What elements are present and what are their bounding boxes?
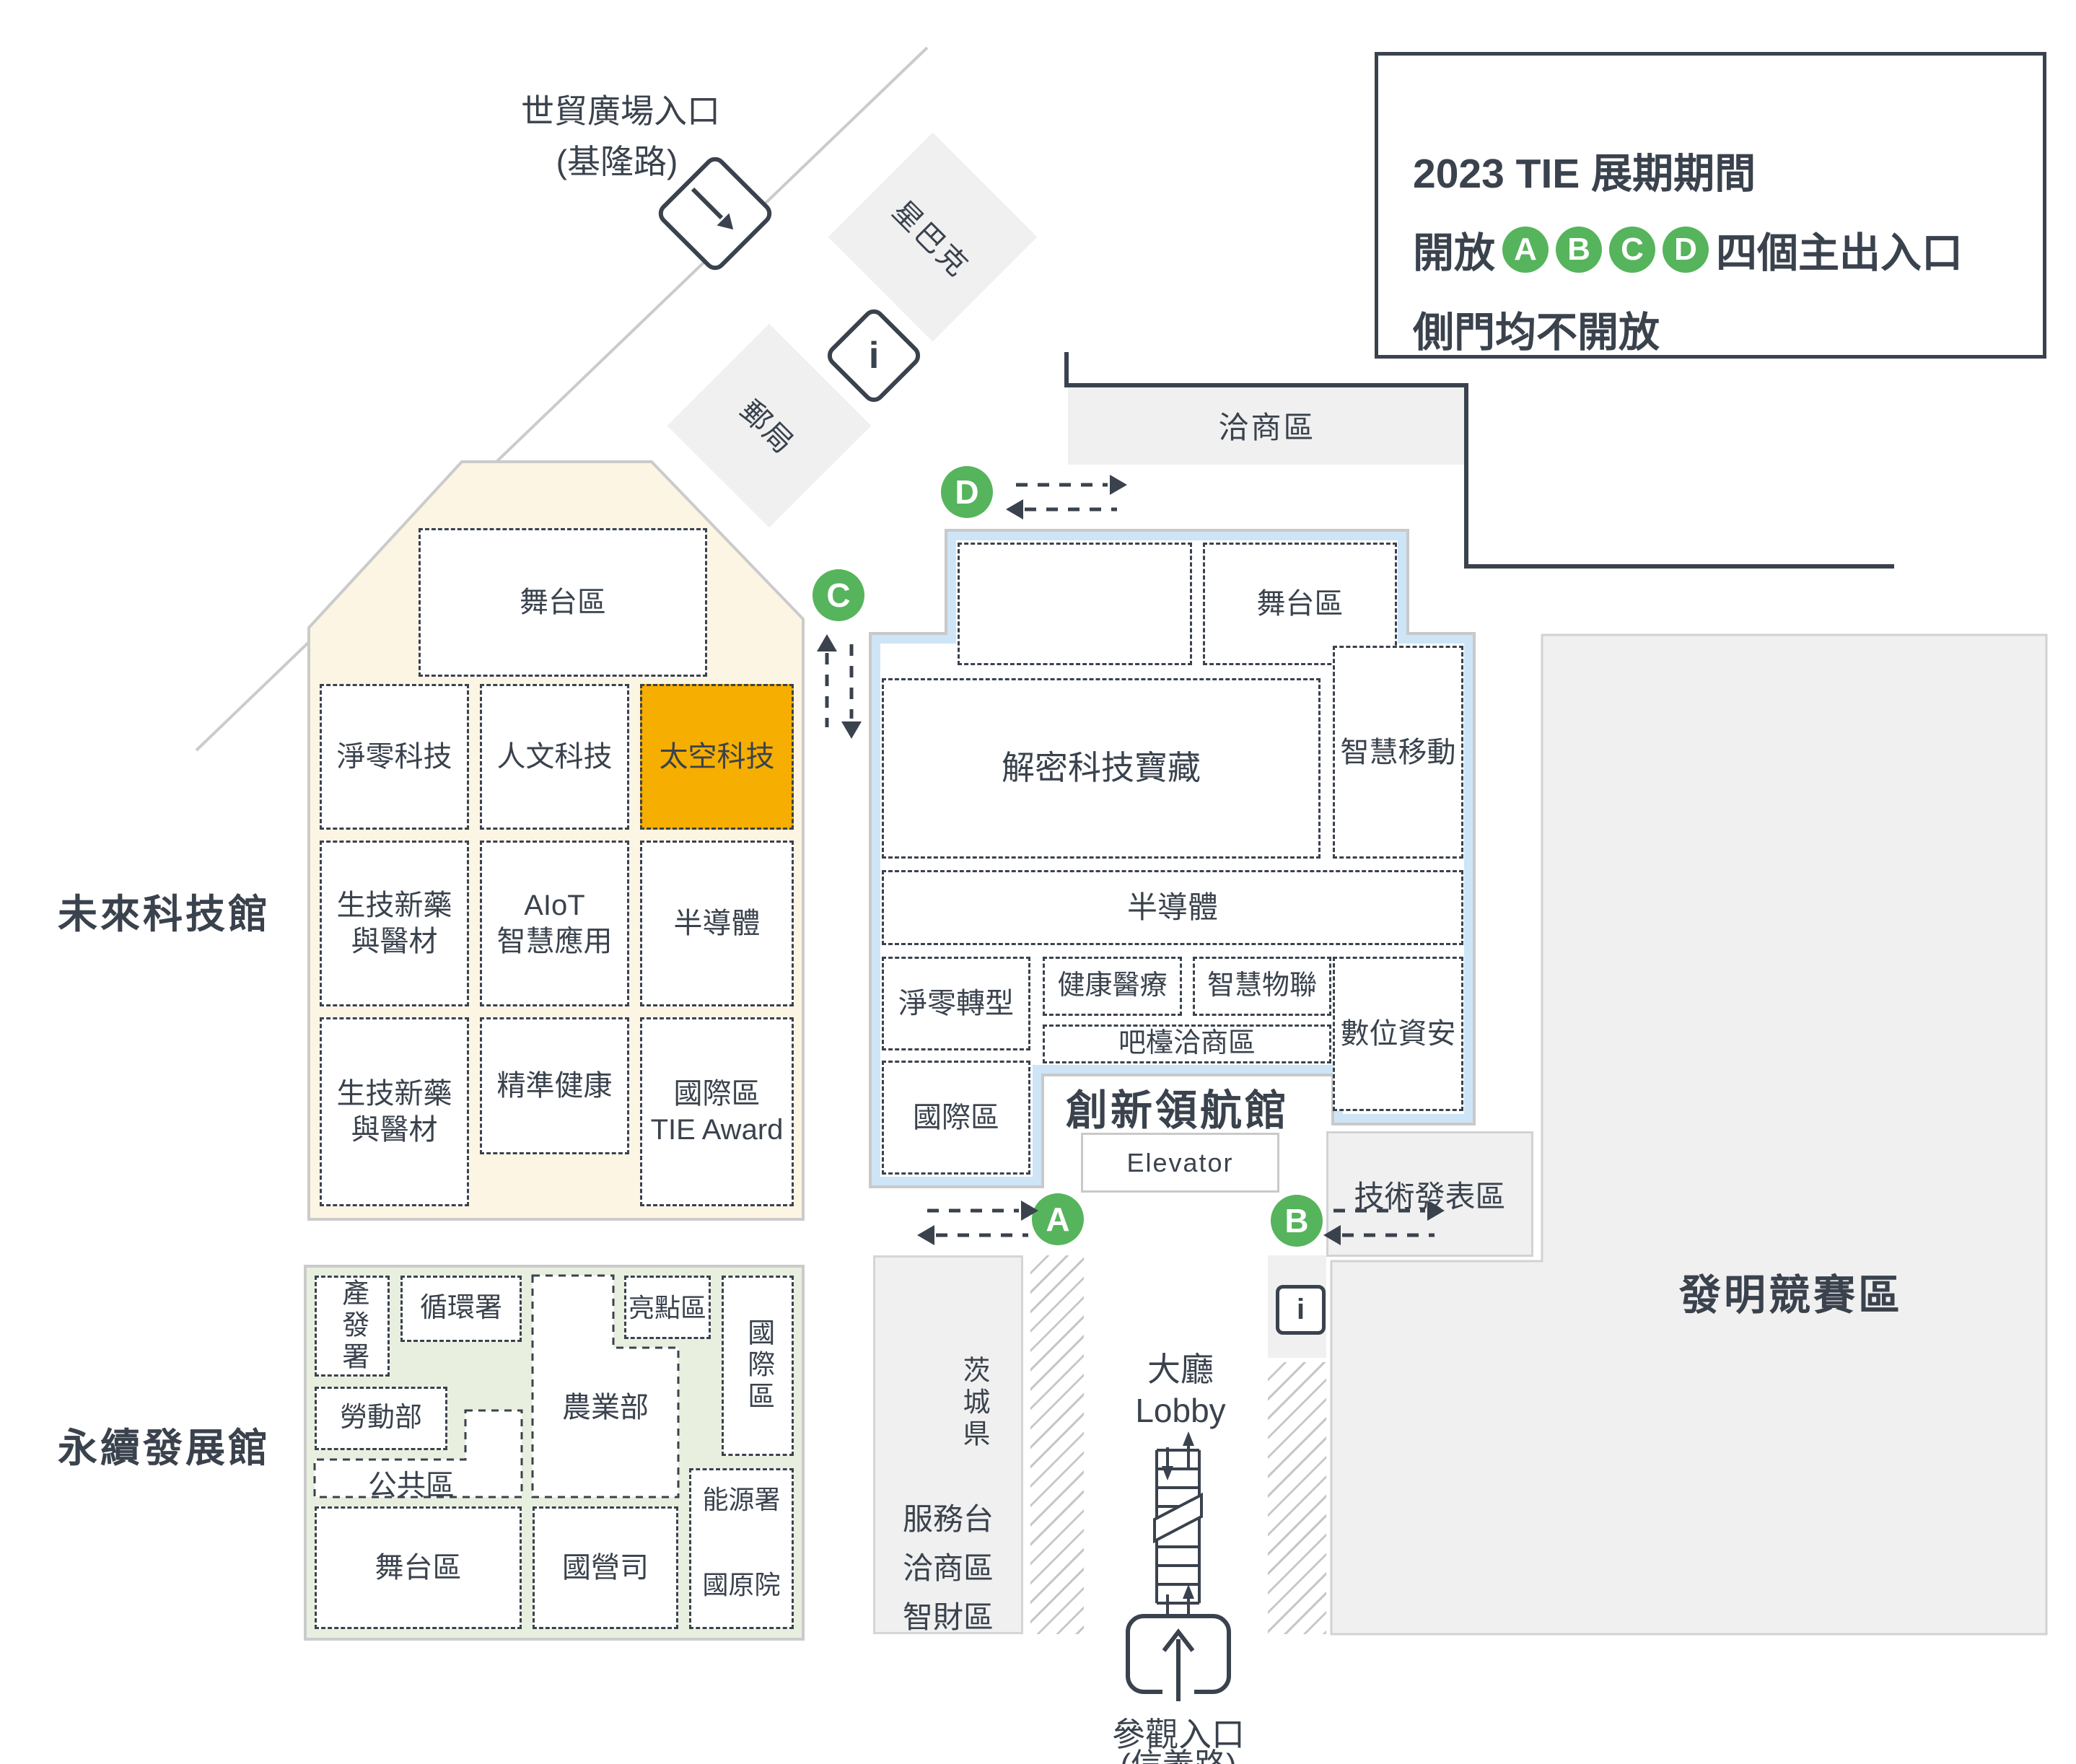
sustainable-hall-title: 永續發展館: [40, 1416, 289, 1473]
room-su-stage: 舞台區: [315, 1506, 522, 1629]
room-in-bar-area: 吧檯洽商區: [1043, 1024, 1331, 1063]
room-su-atomic-label: 國原院: [689, 1564, 794, 1602]
room-ft-intl-tie-award: 國際區 TIE Award: [640, 1017, 794, 1206]
legend-entrance-d: D: [1663, 227, 1709, 273]
legend-entrance-a: A: [1502, 227, 1549, 273]
info-icon: i: [823, 304, 924, 406]
negotiation-area-label: 洽商區: [1218, 403, 1315, 447]
lobby-label-en: Lobby: [1108, 1391, 1253, 1430]
entrance-b-badge: B: [1271, 1195, 1323, 1247]
floor-map: 2023 TIE 展期期間 開放 A B C D 四個主出入口 側門均不開放 世…: [0, 0, 2076, 1764]
room-su-highlight: 亮點區: [624, 1276, 711, 1339]
entrance-c-arrows: [817, 634, 862, 739]
room-su-agriculture-label: 農業部: [533, 1384, 678, 1426]
room-in-empty: [958, 543, 1192, 665]
room-su-labor: 勞動部: [315, 1387, 447, 1450]
entrance-d-badge: D: [941, 466, 993, 518]
room-ft-stage: 舞台區: [419, 528, 707, 677]
room-su-state-owned: 國營司: [533, 1506, 678, 1629]
legend-open-suffix: 四個主出入口: [1716, 220, 1963, 279]
visitor-entrance-road: (信義路): [1034, 1750, 1323, 1764]
room-ft-space-tech-highlighted: 太空科技: [640, 684, 794, 830]
starbucks-label: 星巴克: [885, 189, 980, 284]
entrance-d-arrows: [1006, 475, 1127, 519]
invention-area-label: 發明競賽區: [1647, 1261, 1935, 1322]
room-ft-humanities-tech: 人文科技: [480, 684, 629, 830]
innovation-hall-title: 創新領航館: [1044, 1076, 1311, 1137]
corridor-hatch-b: [1268, 1362, 1326, 1634]
post-office-label: 郵局: [732, 389, 806, 462]
room-ft-semiconductor: 半導體: [640, 841, 794, 1006]
elevator-box: Elevator: [1081, 1133, 1279, 1193]
legend-side-doors: 側門均不開放: [1413, 299, 1660, 359]
visitor-entrance-icon: [1128, 1616, 1229, 1701]
legend-open-prefix: 開放: [1413, 220, 1495, 279]
ibaraki-label: 茨城県: [954, 1328, 994, 1479]
room-in-intl: 國際區: [882, 1061, 1030, 1175]
legend-box: 2023 TIE 展期期間 開放 A B C D 四個主出入口 側門均不開放: [1375, 52, 2046, 359]
room-su-industry: 產發署: [315, 1276, 390, 1377]
room-in-health-medical: 健康醫療: [1043, 957, 1182, 1016]
entrance-a-arrows: [917, 1201, 1038, 1245]
service-ip-label: 智財區: [873, 1593, 1023, 1637]
legend-entrance-c: C: [1609, 227, 1655, 273]
room-in-smart-iot: 智慧物聯: [1193, 957, 1331, 1016]
info-icon-2: i: [1276, 1285, 1326, 1335]
service-negotiation-label: 洽商區: [873, 1544, 1023, 1588]
tech-presentation-box: 技術發表區: [1326, 1131, 1533, 1257]
room-su-intl: 國際區: [722, 1276, 794, 1456]
service-desk-label: 服務台: [873, 1495, 1023, 1539]
room-ft-biotech-1: 生技新藥 與醫材: [320, 841, 469, 1006]
room-su-energy: 能源署: [689, 1468, 794, 1629]
legend-title: 2023 TIE 展期期間: [1413, 141, 1756, 200]
negotiation-area-top: 洽商區: [1068, 385, 1466, 465]
info-icon-letter: i: [869, 334, 879, 377]
room-ft-precision-health: 精準健康: [480, 1017, 629, 1154]
legend-entrance-b: B: [1556, 227, 1602, 273]
stairs-icon: [1155, 1431, 1201, 1631]
future-tech-hall-title: 未來科技館: [40, 882, 289, 939]
room-su-circular: 循環署: [400, 1276, 522, 1342]
room-in-digital-security: 數位資安: [1333, 957, 1463, 1111]
starbucks-block: 星巴克: [828, 133, 1038, 342]
room-su-public-label: 公共區: [339, 1462, 483, 1504]
room-ft-net-zero-tech: 淨零科技: [320, 684, 469, 830]
room-in-smart-mobility: 智慧移動: [1333, 646, 1463, 859]
legend-line2: 開放 A B C D 四個主出入口: [1413, 220, 1963, 279]
north-entrance-label: 世貿廣場入口: [473, 85, 768, 133]
tech-presentation-label: 技術發表區: [1354, 1172, 1505, 1216]
room-ft-biotech-2: 生技新藥 與醫材: [320, 1017, 469, 1206]
legend-line1: 2023 TIE 展期期間: [1413, 141, 1756, 200]
entrance-c-badge: C: [813, 569, 864, 621]
entrance-a-badge: A: [1032, 1193, 1084, 1245]
corridor-hatch-a: [1030, 1255, 1084, 1634]
room-in-treasure: 解密科技寶藏: [882, 678, 1321, 859]
room-ft-aiot: AIoT 智慧應用: [480, 841, 629, 1006]
legend-line3: 側門均不開放: [1413, 299, 1660, 359]
lobby-label-zh: 大廳: [1108, 1343, 1253, 1391]
room-in-semiconductor: 半導體: [882, 870, 1463, 945]
room-in-net-zero-transform: 淨零轉型: [882, 957, 1030, 1050]
